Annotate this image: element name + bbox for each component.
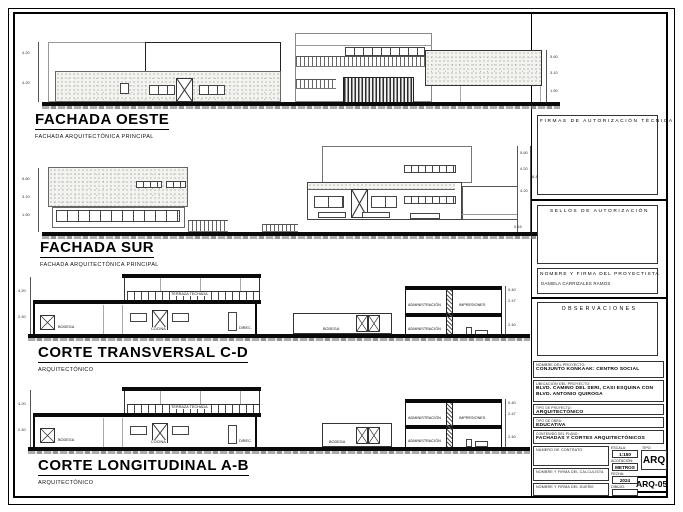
ct-roof-column: [124, 278, 125, 300]
drawing-title-oeste: FACHADA OESTE: [35, 112, 169, 130]
tipo-proyecto-box: TIPO DE PROYECTO: ARQUITECTÓNICO: [533, 404, 664, 415]
cl-roof-post: [200, 391, 201, 405]
sur-lower-windows: [404, 196, 456, 204]
room-label-direc: DIREC.: [238, 326, 253, 330]
dim-label: 3.10: [22, 194, 30, 199]
fecha-value: 2024: [612, 476, 638, 484]
dueno-label: NOMBRE Y FIRMA DEL DUEÑO: [536, 485, 606, 489]
dim-label: 4.20: [520, 188, 528, 193]
ct-admin-mid-slab: [405, 313, 502, 317]
oeste-dimline-right: [546, 50, 547, 104]
dim-label: 4.20: [22, 50, 30, 55]
oeste-column-line: [460, 86, 461, 102]
ct-partition: [122, 305, 123, 334]
dim-label: 2.40: [508, 322, 516, 327]
calculista-label: NOMBRE Y FIRMA DEL CALCULISTA: [536, 470, 606, 474]
room-label-admin-sup: ADMINISTRACIÓN: [407, 303, 442, 307]
proyectista-label: NOMBRE Y FIRMA DEL PROYECTISTA: [540, 272, 659, 277]
ct-ground-texture: [28, 338, 530, 341]
sheet-number-rule: [638, 476, 668, 478]
drawing-subtitle-sur: FACHADA ARQUITECTÓNICA PRINCIPAL: [40, 262, 159, 268]
ct-wall: [33, 304, 35, 334]
sur-fence-hatch: [188, 220, 228, 232]
dim-label: 2.47: [508, 411, 516, 416]
firmas-label: FIRMAS DE AUTORIZACIÓN TÉCNICA: [540, 119, 659, 124]
drawing-subtitle-longitudinal: ARQUITECTÓNICO: [38, 480, 93, 486]
dim-label: 1.50: [22, 212, 30, 217]
oeste-hatch-strip: [296, 56, 431, 67]
ct-dimline-right: [505, 286, 506, 338]
room-label-direc: DIREC.: [238, 439, 253, 443]
cl-dimline-right: [505, 399, 506, 448]
dim-label: 5.60: [550, 54, 558, 59]
escala-value: 1:150: [612, 450, 638, 458]
sellos-label: SELLOS DE AUTORIZACIÓN: [540, 209, 659, 214]
sur-window: [314, 196, 344, 208]
oeste-dimline-left: [38, 42, 39, 102]
oeste-stipple-volume: [425, 50, 542, 86]
cl-double-door-x: [356, 427, 368, 444]
sur-dimline-right: [517, 146, 518, 232]
dim-label: 5.60: [22, 176, 30, 181]
room-label-impresiones: IMPRESIONES: [458, 303, 486, 307]
dibujo-value: [612, 489, 638, 496]
dim-label: 4.20: [520, 166, 528, 171]
room-label-cocina: COCINA: [150, 440, 167, 444]
cl-ground-texture: [28, 451, 530, 454]
cl-partition: [103, 418, 104, 447]
ubicacion-value: BLVD. CAMINO DEL SERI, CASI ESQUINA CON …: [536, 386, 661, 398]
cl-double-door-x: [368, 427, 380, 444]
drawing-subtitle-oeste: FACHADA ARQUITECTÓNICA PRINCIPAL: [35, 134, 154, 140]
oeste-louver-screen: [343, 77, 414, 103]
oeste-door-x-symbol: [176, 78, 193, 102]
dim-label: 1.50: [550, 88, 558, 93]
sur-base-vent: [362, 212, 390, 218]
oeste-ground-texture: [42, 106, 560, 109]
ubicacion-box: UBICACIÓN DEL PROYECTO: BLVD. CAMINO DEL…: [533, 380, 664, 402]
room-label-cocina: COCINA: [150, 327, 167, 331]
titleblock-divider: [531, 14, 532, 496]
ct-partition: [103, 305, 104, 334]
sur-window: [371, 196, 397, 208]
cl-window: [172, 426, 189, 435]
ct-door-x-symbol: [40, 315, 55, 330]
drawing-title-sur: FACHADA SUR: [40, 240, 154, 258]
dim-label: 2.47: [508, 298, 516, 303]
sur-window-band: [166, 181, 186, 188]
ct-dimline-left: [30, 277, 31, 334]
proyectista-box: NOMBRE Y FIRMA DEL PROYECTISTA DANIELA C…: [537, 268, 658, 294]
observaciones-box: OBSERVACIONES: [537, 302, 658, 356]
cl-fixture: [466, 439, 472, 447]
room-label-admin-inf: ADMINISTRACIÓN: [407, 327, 442, 331]
oeste-roof-volume: [145, 42, 281, 72]
cl-roof-column: [124, 391, 125, 413]
room-label-bodega-patio: BODEGA: [322, 327, 340, 331]
room-label-bodega-patio: BODEGA: [328, 440, 346, 444]
room-label-bodega: BODEGA: [57, 438, 75, 442]
ct-roof-post: [160, 278, 161, 292]
contrato-box: NÚMERO DE CONTRATO: [533, 446, 609, 466]
drawing-title-transversal: CORTE TRANSVERSAL C-D: [38, 345, 248, 363]
cl-roof-post: [160, 391, 161, 405]
dim-label: 5.60: [520, 150, 528, 155]
dim-label: 2.40: [18, 427, 26, 432]
dim-label: 4.20: [18, 288, 26, 293]
cl-wall: [33, 417, 35, 447]
dueno-box: NOMBRE Y FIRMA DEL DUEÑO: [533, 483, 609, 496]
sur-base-vent: [318, 212, 346, 218]
proyectista-value: DANIELA CARRIZALES RAMOS: [541, 281, 610, 286]
nombre-proyecto-box: NOMBRE DEL PROYECTO: CONJUNTO KONKAAK: C…: [533, 361, 664, 378]
ct-wall: [255, 304, 257, 334]
ct-admin-roof-slab: [405, 286, 502, 290]
cl-wall: [255, 417, 257, 447]
cl-door-x-symbol: [40, 428, 55, 443]
sellos-box: SELLOS DE AUTORIZACIÓN: [537, 205, 658, 264]
drawing-title-longitudinal: CORTE LONGITUDINAL A-B: [38, 458, 249, 476]
room-label-impresiones: IMPRESIONES: [458, 416, 486, 420]
dim-label: 0.40: [508, 400, 516, 405]
sur-base-vent: [410, 213, 440, 219]
ct-door: [228, 312, 237, 331]
dim-label: 2.40: [508, 434, 516, 439]
contenido-value: FACHADAS Y CORTES ARQUITECTÓNICOS: [536, 436, 661, 441]
sur-window-band: [136, 181, 162, 188]
sur-window-strip: [56, 210, 180, 222]
room-label-admin-sup: ADMINISTRACIÓN: [407, 416, 442, 420]
contenido-box: CONTENIDO DEL PLANO: FACHADAS Y CORTES A…: [533, 430, 664, 444]
oeste-clerestory-windows: [345, 47, 425, 56]
sheet-number: ARQ-05: [636, 479, 670, 489]
nombre-proyecto-value: CONJUNTO KONKAAK: CENTRO SOCIAL: [536, 367, 661, 372]
room-label-terraza: TERRAZA TECHADA: [170, 292, 209, 296]
cl-partition: [122, 418, 123, 447]
titleblock-separator: [531, 199, 668, 201]
ct-floor-slab: [33, 300, 261, 304]
drawing-subtitle-transversal: ARQUITECTÓNICO: [38, 367, 93, 373]
dim-label: 2.40: [18, 314, 26, 319]
sur-upper-windows: [404, 165, 456, 173]
sur-dimline-right-outer: [530, 146, 531, 232]
cl-window: [130, 426, 147, 435]
cl-admin-mid-slab: [405, 425, 502, 429]
firmas-box: FIRMAS DE AUTORIZACIÓN TÉCNICA: [537, 115, 658, 195]
dim-label: 3.10: [550, 70, 558, 75]
titleblock-separator: [531, 297, 668, 299]
room-label-terraza: TERRAZA TECHADA: [170, 405, 209, 409]
oeste-window-band: [149, 85, 175, 95]
ct-roof-post: [240, 278, 241, 292]
sur-dimline-left: [38, 168, 39, 232]
ct-window: [172, 313, 189, 322]
oeste-window-band: [199, 85, 225, 95]
cl-roof-post: [240, 391, 241, 405]
dim-label: 0.15: [514, 224, 522, 229]
tipo-value: ARQ: [641, 450, 667, 470]
cl-dimline-left: [30, 390, 31, 447]
tipo-obra-box: TIPO DE OBRA: EDUCATIVA: [533, 417, 664, 428]
ct-double-door-x: [356, 315, 368, 332]
cl-cut-wall-hatch: [446, 403, 453, 447]
cl-door: [228, 425, 237, 444]
sur-parapet-stipple: [308, 183, 455, 190]
sheet-number-rule: [638, 491, 668, 493]
ct-double-door-x: [368, 315, 380, 332]
observaciones-label: OBSERVACIONES: [540, 306, 659, 312]
sur-fence-hatch: [262, 224, 298, 232]
plan-sheet: 4.20 4.20 5.60 3.10 1.50 FACHADA OESTE F…: [0, 0, 683, 512]
oeste-back-roofline: [295, 45, 432, 46]
oeste-hatch-strip: [296, 79, 336, 89]
dim-label: 4.20: [18, 401, 26, 406]
oeste-column-line: [540, 86, 541, 102]
contrato-label: NÚMERO DE CONTRATO: [536, 448, 606, 452]
room-label-admin-inf: ADMINISTRACIÓN: [407, 439, 442, 443]
ct-window: [130, 313, 147, 322]
dim-label: 0.40: [508, 287, 516, 292]
cl-floor-slab: [33, 413, 261, 417]
oeste-window-small: [120, 83, 129, 94]
ct-roof-post: [200, 278, 201, 292]
ct-cut-wall-hatch: [446, 290, 453, 338]
cl-admin-roof-slab: [405, 399, 502, 403]
sur-wing-line: [462, 214, 518, 215]
tipo-obra-value: EDUCATIVA: [536, 423, 661, 428]
room-label-bodega: BODEGA: [57, 325, 75, 329]
dim-label: 4.20: [22, 80, 30, 85]
acotacion-value: METROS: [612, 463, 638, 471]
calculista-box: NOMBRE Y FIRMA DEL CALCULISTA: [533, 468, 609, 481]
tipo-proyecto-value: ARQUITECTÓNICO: [536, 410, 661, 415]
